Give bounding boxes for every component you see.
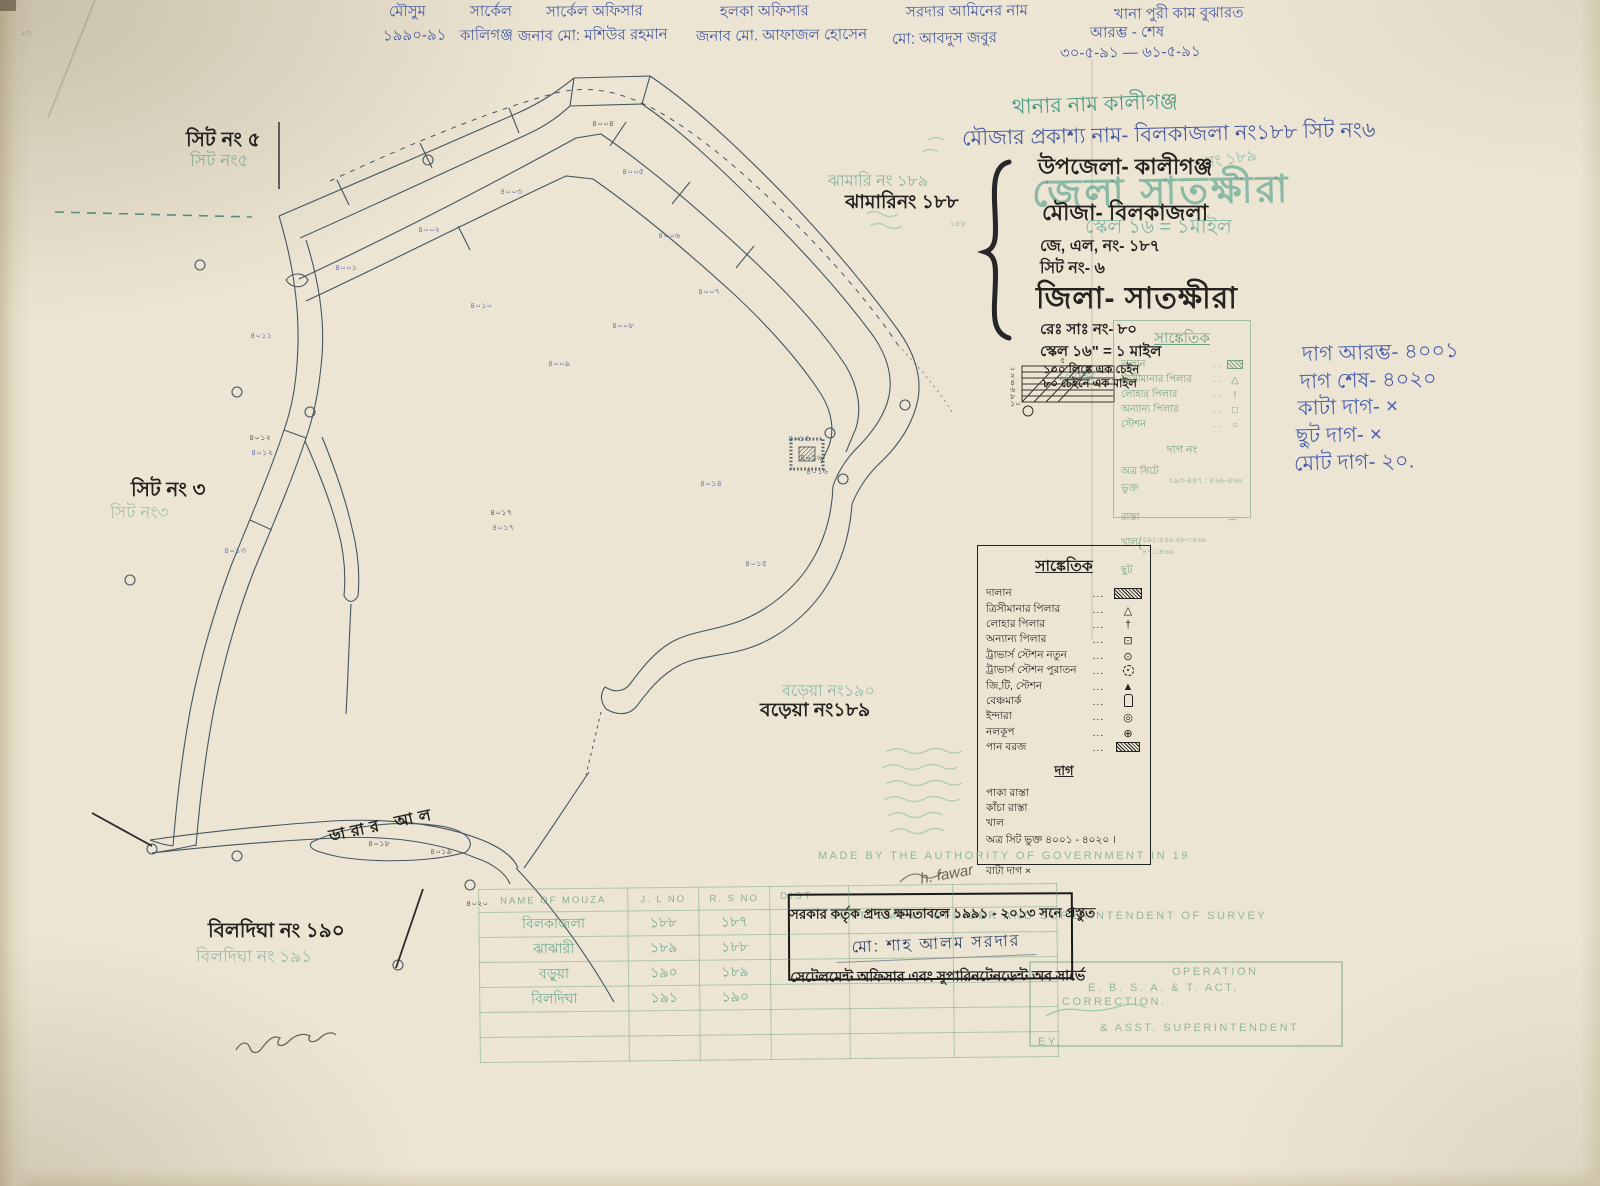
mouza-table-header-2: R. S NO <box>699 886 770 910</box>
survey-station-circle <box>465 880 475 890</box>
hatched-rect-small-icon <box>1114 742 1142 755</box>
g-hatch-icon-shape <box>1227 360 1243 369</box>
hatched-rect-small-icon-shape <box>1116 742 1140 752</box>
cadastral-map-sheet: { "colors": {"paper":"#ece5d3","ink":"#2… <box>0 0 1600 1186</box>
mouza-table-empty-cell <box>700 1034 771 1060</box>
header-item-1-line-1: কালিগঞ্জ <box>460 24 513 50</box>
hatched-rect-icon-shape <box>1114 588 1142 599</box>
mouza-table-cell <box>953 956 1057 982</box>
plot-number: ৪০১৫ <box>745 558 767 571</box>
legend-dots-0: ... <box>1012 589 1114 600</box>
green-legend-dots-3: · · <box>1179 406 1227 416</box>
survey-station-circle <box>232 851 242 861</box>
legend-row-0: দালান... <box>978 587 1150 602</box>
legend-dots-1: ... <box>1060 605 1114 616</box>
plot-number: ৪০১৭ <box>490 507 512 520</box>
header-item-3-line-0: হলকা অফিসার <box>720 0 809 26</box>
green-legend-atra-label: অত্র সিটে ভুক্ত <box>1121 464 1169 498</box>
mouza-table-cell <box>770 959 849 985</box>
plot-number: ৪০০৭ <box>698 286 720 299</box>
header-item-4-line-1: মো: আবদুস জবুর <box>892 26 997 52</box>
mouza-table-cell <box>849 933 953 959</box>
mouza-table-cell: ১৮৯ <box>699 959 770 985</box>
plot-number: ৪০১৬ <box>800 452 822 465</box>
operation-stamp: OPERATION <box>1172 966 1258 978</box>
plot-number: ৪০১৩ <box>224 545 246 558</box>
legend-row-10: পান বরজ... <box>978 741 1150 756</box>
mouza-table-cell <box>771 984 850 1010</box>
green-legend-dag-no: দাগ নং <box>1114 441 1250 460</box>
legend-row-2: লোহার পিলার...† <box>978 618 1150 633</box>
dashed-circle-dot-icon-shape <box>1123 665 1134 676</box>
corner-pencil-mark: ২০ <box>20 26 32 41</box>
green-legend-title: সাঙ্কেতিক <box>1114 327 1250 352</box>
plot-number: ৪০১৪ <box>700 478 722 491</box>
plot-number: ৪০১০ <box>470 300 492 313</box>
green-legend-box: সাঙ্কেতিক দালান· ·ত্রিসীমানার পিলার· ·△ল… <box>1113 320 1251 518</box>
legend-dots-2: ... <box>1045 620 1114 631</box>
green-legend-khal-v2: ৪৭১:৪৬৬ <box>1142 547 1207 559</box>
mouza-table-empty-cell <box>771 1009 850 1035</box>
g-tri-icon: △ <box>1227 375 1243 386</box>
scale-bar-chain-label: ১০ চেইন <box>1058 370 1094 387</box>
black-legend-items: দালান...ত্রিসীমানার পিলার...△লোহার পিলার… <box>978 587 1150 756</box>
dashed-circle-dot-icon <box>1114 665 1142 679</box>
boreya-label: বড়েয়া নং১৮৯ <box>760 696 870 728</box>
plot-number: ৪০০৩ <box>500 186 522 199</box>
survey-station-circle <box>125 575 135 585</box>
square-dot-icon: ⊡ <box>1114 634 1142 647</box>
mouza-table-empty-cell <box>629 1035 700 1061</box>
header-item-5-line-2: ৩০-৫-৯১ — ৬১-৫-৯১ <box>1060 40 1201 67</box>
triangle-dot-icon: △ <box>1114 604 1142 617</box>
sheet5-label-stamp: সিট নং৫ <box>190 148 249 176</box>
plot-number: ৪০১২ <box>251 447 273 460</box>
dag-item-2: খাল <box>978 816 1150 831</box>
header-item-2-line-0: সার্কেল অফিসার <box>546 0 643 26</box>
mouza-table-cell: বড়ুয়া <box>479 961 628 988</box>
filled-triangle-icon: ▲ <box>1114 681 1142 693</box>
legend-dots-6: ... <box>1042 682 1114 693</box>
dag-item-0: পাকা রাস্তা <box>978 786 1150 801</box>
fold-creases <box>48 0 1092 640</box>
legend-row-1: ত্রিসীমানার পিলার...△ <box>978 602 1150 617</box>
green-legend-dots-0: · · <box>1145 361 1227 371</box>
plot-number: ৪০০১ <box>335 262 357 275</box>
mouza-table-empty-cell <box>954 1031 1058 1057</box>
green-legend-dots-1: · · <box>1192 376 1227 386</box>
mouza-table-wrap: NAME OF MOUZAJ. L NOR. S NOবিলকাজলা১৮৮১৮… <box>479 886 1058 1060</box>
blue-note-4: মোট দাগ- ২০. <box>1294 444 1415 482</box>
plot-number: ৪০১৫ <box>788 433 810 446</box>
mouza-table-empty-cell <box>850 1033 954 1059</box>
mouza-table-empty-cell <box>700 1009 771 1035</box>
legend-label-10: পান বরজ <box>986 740 1026 757</box>
plot-number: ৪০০২ <box>418 224 440 237</box>
mouza-table-cell: ১৯০ <box>700 984 771 1010</box>
title-brace <box>985 162 1009 338</box>
g-cross-icon: ! <box>1227 390 1243 401</box>
plot-number: ৪০০৯ <box>548 358 570 371</box>
legend-dots-4: ... <box>1067 651 1114 662</box>
mouza-table-empty-cell <box>954 1006 1058 1032</box>
green-legend-items: দালান· ·ত্রিসীমানার পিলার· ·△লোহার পিলার… <box>1114 358 1250 433</box>
mouza-table-header-3 <box>770 886 849 910</box>
act-stamp: E. B. S. A. & T. ACT, <box>1088 982 1239 994</box>
double-circle-icon: ◎ <box>1114 711 1142 724</box>
mouza-table-cell: ১৯০ <box>628 960 699 986</box>
mouza-table-empty-cell <box>480 1036 629 1063</box>
plot-number: ৪০০৪ <box>592 118 614 131</box>
plot-number: ৪০১৮ <box>368 838 390 851</box>
legend-dots-3: ... <box>1046 635 1114 646</box>
header-item-1-line-0: সার্কেল <box>470 0 512 25</box>
green-legend-atra-value: ২৯৩-৪৪৭ : ৪৬৬-৪৬৮ <box>1169 475 1243 488</box>
plot-number: ৪০১১ <box>250 330 272 343</box>
green-legend-label-4: স্টেশন <box>1121 417 1146 434</box>
mouza-table-cell: বিলদিঘা <box>480 986 629 1013</box>
legend-row-5: ট্রাভার্স স্টেশন পুরাতন... <box>978 664 1150 679</box>
g-circ-icon: ○ <box>1227 420 1243 431</box>
legend-row-6: জি,টি, স্টেশন...▲ <box>978 679 1150 694</box>
bildigha-label-stamp: বিলদিঘা নং ১৯১ <box>196 944 312 972</box>
green-legend-khal-v1: ৫৯১:৫৪৯:৫৮০:৪৬৮ <box>1142 535 1207 547</box>
legend-dots-8: ... <box>1012 712 1114 723</box>
mouza-table-cell <box>770 934 849 960</box>
mouza-table: NAME OF MOUZAJ. L NOR. S NOবিলকাজলা১৮৮১৮… <box>478 883 1059 1063</box>
sheet3-label-stamp: সিট নং৩ <box>110 500 169 528</box>
black-legend-title: সাঙ্কেতিক <box>978 554 1150 580</box>
benchmark-icon <box>1114 694 1142 710</box>
faint-green-scribbles <box>866 138 962 834</box>
plot-number: ৪০১৯ <box>430 846 452 859</box>
legend-dots-7: ... <box>1022 697 1114 708</box>
legend-row-7: বেঞ্চমার্ক... <box>978 695 1150 710</box>
mouza-table-cell <box>953 906 1057 932</box>
mouza-table-empty-cell <box>480 1011 629 1038</box>
mouza-table-empty-cell <box>629 1010 700 1036</box>
mouza-table-empty-cell <box>771 1034 850 1060</box>
green-legend-dots-2: · · <box>1177 391 1227 401</box>
circle-plus-icon: ⊕ <box>1114 727 1142 740</box>
iron-cross-icon: † <box>1114 619 1142 631</box>
mouza-table-cell: বিলকাজলা <box>479 911 628 938</box>
plot-number: ৪০১২ <box>249 432 271 445</box>
survey-bands <box>150 76 919 1002</box>
green-legend-rasta: রাস্তা <box>1121 510 1140 527</box>
mouza-table-header-0: NAME OF MOUZA <box>479 888 628 913</box>
survey-station-circle <box>195 260 205 270</box>
benchmark-icon-shape <box>1124 694 1133 707</box>
green-legend-row-1: ত্রিসীমানার পিলার· ·△ <box>1114 373 1250 388</box>
mouza-table-cell <box>849 908 953 934</box>
asst-superintendent-stamp: & ASST. SUPERINTENDENT <box>1100 1022 1299 1034</box>
mouza-table-header-1: J. L NO <box>628 887 699 911</box>
survey-station-circle <box>838 474 848 484</box>
plot-number: ৪০০৫ <box>622 166 644 179</box>
correction-stamp: CORRECTION. <box>1062 996 1167 1008</box>
legend-row-8: ইন্দারা...◎ <box>978 710 1150 725</box>
survey-station-circle <box>900 400 910 410</box>
g-sq-icon: □ <box>1227 405 1243 416</box>
header-item-4-line-0: সরদার আমিনের নাম <box>906 0 1028 26</box>
plot-number: ১৮৮ <box>950 218 967 231</box>
mouza-table-cell <box>953 931 1057 957</box>
mouza-table-empty-cell <box>850 1008 954 1034</box>
mouza-table-cell: ১৮৮ <box>628 910 699 936</box>
header-item-3-line-1: জনাব মো. আফাজল হোসেন <box>696 23 867 50</box>
mouza-table-cell <box>850 983 954 1009</box>
mouza-line: মৌজা- বিলকাজলা <box>1042 196 1208 233</box>
header-item-2-line-1: জনাব মো: মশিউর রহমান <box>518 23 668 50</box>
mouza-table-cell: ১৯১ <box>629 985 700 1011</box>
green-legend-rasta-dots: — <box>1140 514 1244 524</box>
mouza-table-cell <box>954 981 1058 1007</box>
legend-dots-5: ... <box>1077 666 1114 677</box>
header-officials-row: মৌসুম১৯৯০-৯১সার্কেলকালিগঞ্জসার্কেল অফিসা… <box>0 0 1600 70</box>
plot-number: ৪০১৭ <box>492 522 514 535</box>
survey-station-circle <box>825 428 835 438</box>
header-item-0-line-0: মৌসুম <box>389 0 426 25</box>
dag-item-1: কাঁচা রাস্তা <box>978 801 1150 816</box>
mouza-table-cell <box>849 958 953 984</box>
black-legend-box: সাঙ্কেতিক দালান...ত্রিসীমানার পিলার...△ল… <box>977 545 1151 865</box>
green-legend-row-0: দালান· · <box>1114 358 1250 373</box>
mouza-table-header-5 <box>953 883 1057 907</box>
black-legend-bata-line: বাটা দাগ × <box>978 864 1150 881</box>
scale-tick: ১০ <box>1010 399 1020 408</box>
green-legend-row-3: অন্যান্য পিলার· ·□ <box>1114 403 1250 418</box>
survey-station-circles <box>125 155 910 970</box>
g-hatch-icon <box>1227 360 1243 372</box>
hatched-rect-icon <box>1114 588 1142 602</box>
black-legend-atra-line: অত্র সিট ভুক্ত ৪০০১ - ৪০২০ । <box>978 833 1150 850</box>
legend-dots-9: ... <box>1015 728 1114 739</box>
survey-station-circle <box>232 387 242 397</box>
jhamari-label: ঝামারিনং ১৮৮ <box>845 188 959 220</box>
legend-row-4: ট্রাভার্স স্টেশন নতুন...⊙ <box>978 649 1150 664</box>
legend-row-3: অন্যান্য পিলার...⊡ <box>978 633 1150 648</box>
mouza-table-cell: ঝাঝারী <box>479 936 628 963</box>
black-legend-dag-title: দাগ <box>978 762 1150 783</box>
mouza-table-header-4 <box>849 885 953 909</box>
mouza-table-cell: ১৮৯ <box>628 935 699 961</box>
mouza-table-cell: ১৮৭ <box>699 909 770 935</box>
green-legend-row-2: লোহার পিলার· ·! <box>1114 388 1250 403</box>
circle-dot-icon: ⊙ <box>1114 650 1142 663</box>
plot-number: ৪০১৬ <box>806 466 828 479</box>
green-legend-row-4: স্টেশন· ·○ <box>1114 418 1250 433</box>
black-legend-dag-items: পাকা রাস্তাকাঁচা রাস্তাখাল <box>978 786 1150 831</box>
plot-number: ৪০০৬ <box>658 230 680 243</box>
legend-row-9: নলকূপ...⊕ <box>978 726 1150 741</box>
plot-number: ৪০০৮ <box>612 320 634 333</box>
mouza-table-cell <box>770 909 849 935</box>
upazila-line: উপজেলা- কালীগঞ্জ <box>1038 150 1212 187</box>
header-item-0-line-1: ১৯৯০-৯১ <box>383 24 447 50</box>
made-by-stamp: MADE BY THE AUTHORITY OF GOVERNMENT IN 1… <box>818 850 1190 862</box>
mouza-table-cell: ১৮৮ <box>699 934 770 960</box>
green-legend-dots-4: · · <box>1146 421 1227 431</box>
legend-dots-10: ... <box>1026 743 1114 754</box>
